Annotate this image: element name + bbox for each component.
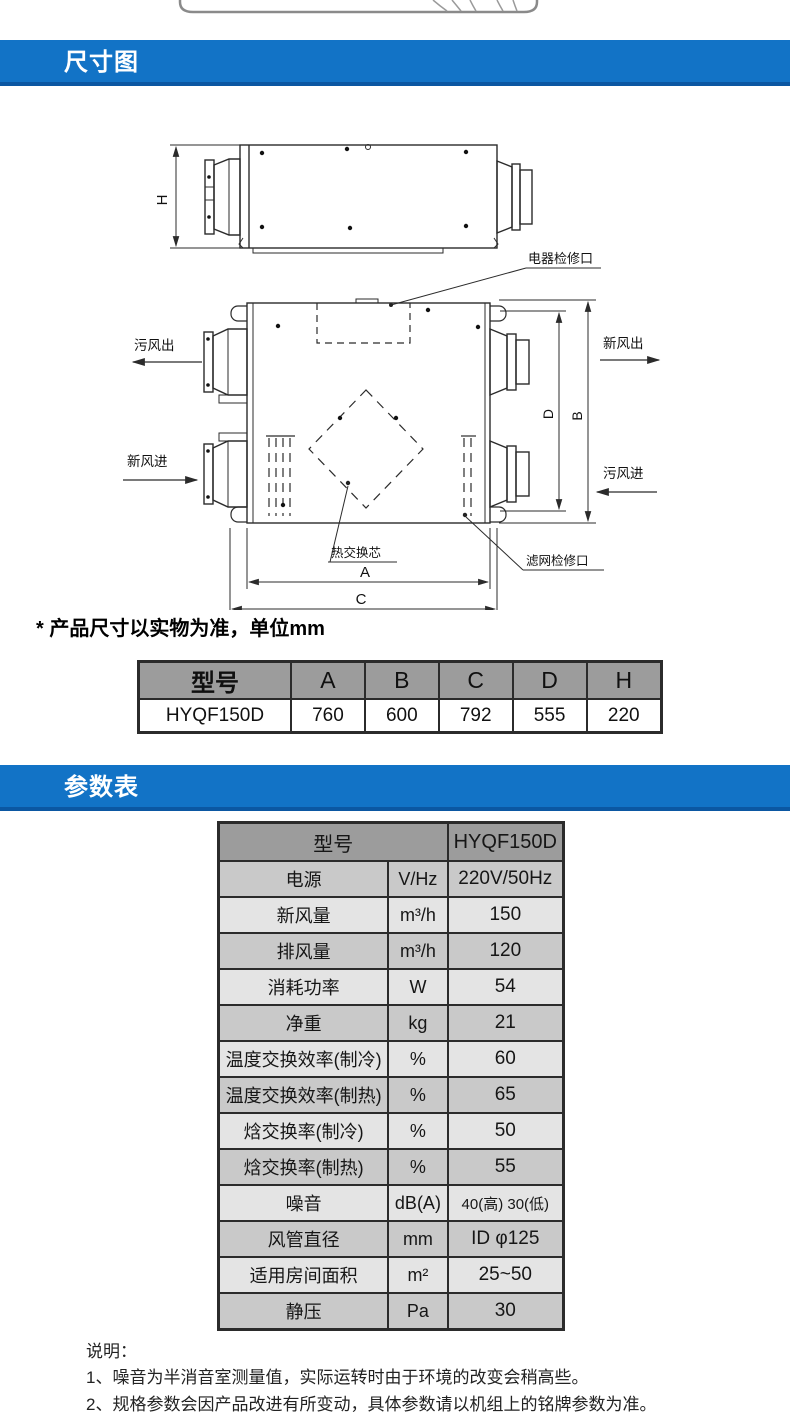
param-unit: m² <box>388 1257 447 1293</box>
callout-heat-core-label: 热交换芯 <box>331 545 381 560</box>
notes-title: 说明： <box>86 1339 790 1365</box>
param-label: 噪音 <box>219 1185 389 1221</box>
param-value: 60 <box>448 1041 564 1077</box>
electric-access-panel <box>317 303 410 343</box>
param-label: 焓交换率(制热) <box>219 1149 389 1185</box>
param-unit: dB(A) <box>388 1185 447 1221</box>
dim-th-b: B <box>365 662 439 700</box>
dim-th-model: 型号 <box>139 662 292 700</box>
param-unit: m³/h <box>388 933 447 969</box>
param-row: 温度交换效率(制冷) % 60 <box>219 1041 564 1077</box>
param-row: 风管直径 mm ID φ125 <box>219 1221 564 1257</box>
param-label: 排风量 <box>219 933 389 969</box>
param-unit: mm <box>388 1221 447 1257</box>
param-unit: V/Hz <box>388 861 447 897</box>
right-ducts <box>490 329 529 507</box>
dim-th-c: C <box>439 662 513 700</box>
dim-label-b: B <box>569 411 585 420</box>
param-unit: % <box>388 1077 447 1113</box>
dim-td-b: 600 <box>365 699 439 733</box>
callout-electric-access <box>389 268 601 307</box>
dim-label-c: C <box>356 591 367 608</box>
param-label: 温度交换效率(制冷) <box>219 1041 389 1077</box>
screw-dots <box>207 147 468 230</box>
product-spec-page: 尺寸图 <box>0 0 790 1418</box>
param-unit: m³/h <box>388 897 447 933</box>
param-label: 新风量 <box>219 897 389 933</box>
dim-td-h: 220 <box>587 699 662 733</box>
param-unit: kg <box>388 1005 447 1041</box>
flow-label-dirty-out: 污风出 <box>134 338 175 353</box>
param-unit: % <box>388 1041 447 1077</box>
param-value: 21 <box>448 1005 564 1041</box>
dimension-note: * 产品尺寸以实物为准，单位mm <box>0 612 790 646</box>
dimension-drawing: H 电器检修口 <box>0 86 790 610</box>
param-value: 220V/50Hz <box>448 861 564 897</box>
heat-core-diamond <box>309 390 423 508</box>
footer-notes: 说明： 1、噪音为半消音室测量值，实际运转时由于环境的改变会稍高些。 2、规格参… <box>0 1339 790 1418</box>
filter-left <box>266 436 295 516</box>
dim-D <box>500 311 566 511</box>
param-row: 新风量 m³/h 150 <box>219 897 564 933</box>
param-label: 消耗功率 <box>219 969 389 1005</box>
callout-electric-access-label: 电器检修口 <box>528 251 593 266</box>
param-value: 65 <box>448 1077 564 1113</box>
param-label: 风管直径 <box>219 1221 389 1257</box>
param-value: 30 <box>448 1293 564 1330</box>
param-value: 25~50 <box>448 1257 564 1293</box>
photo-vent-lines <box>433 0 517 11</box>
section-header-parameters: 参数表 <box>0 765 790 811</box>
param-row: 净重 kg 21 <box>219 1005 564 1041</box>
param-row: 消耗功率 W 54 <box>219 969 564 1005</box>
callout-filter-access-label: 滤网检修口 <box>526 553 589 568</box>
dim-td-a: 760 <box>291 699 365 733</box>
param-unit: % <box>388 1149 447 1185</box>
dim-label-h: H <box>154 195 171 206</box>
param-value: 150 <box>448 897 564 933</box>
param-row: 排风量 m³/h 120 <box>219 933 564 969</box>
param-value: 54 <box>448 969 564 1005</box>
param-unit: W <box>388 969 447 1005</box>
param-row: 噪音 dB(A) 40(高) 30(低) <box>219 1185 564 1221</box>
param-value: 55 <box>448 1149 564 1185</box>
param-label: 净重 <box>219 1005 389 1041</box>
dim-th-a: A <box>291 662 365 700</box>
side-view-drawing: H <box>154 145 532 254</box>
param-label: 静压 <box>219 1293 389 1330</box>
param-row: 适用房间面积 m² 25~50 <box>219 1257 564 1293</box>
parameter-table: 型号 HYQF150D 电源 V/Hz 220V/50Hz 新风量 m³/h 1… <box>217 821 565 1331</box>
param-row: 温度交换效率(制热) % 65 <box>219 1077 564 1113</box>
flow-label-fresh-in: 新风进 <box>127 454 168 469</box>
dim-td-model: HYQF150D <box>139 699 292 733</box>
note-line: 1、噪音为半消音室测量值，实际运转时由于环境的改变会稍高些。 <box>86 1365 790 1391</box>
param-value: 50 <box>448 1113 564 1149</box>
flow-label-fresh-out: 新风出 <box>603 336 644 351</box>
param-value: 120 <box>448 933 564 969</box>
param-row: 焓交换率(制热) % 55 <box>219 1149 564 1185</box>
param-row: 焓交换率(制冷) % 50 <box>219 1113 564 1149</box>
note-line: 2、规格参数会因产品改进有所变动，具体参数请以机组上的铭牌参数为准。 <box>86 1392 790 1418</box>
param-label: 电源 <box>219 861 389 897</box>
dim-th-h: H <box>587 662 662 700</box>
dimension-table: 型号 A B C D H HYQF150D 760 600 792 555 22… <box>137 660 663 734</box>
dim-th-d: D <box>513 662 587 700</box>
param-model-label: 型号 <box>219 823 448 862</box>
dim-td-d: 555 <box>513 699 587 733</box>
param-value: 40(高) 30(低) <box>448 1185 564 1221</box>
dim-td-c: 792 <box>439 699 513 733</box>
param-unit: Pa <box>388 1293 447 1330</box>
param-label: 焓交换率(制冷) <box>219 1113 389 1149</box>
dim-label-a: A <box>360 564 370 581</box>
param-label: 适用房间面积 <box>219 1257 389 1293</box>
mounting-brackets <box>231 306 506 522</box>
param-unit: % <box>388 1113 447 1149</box>
param-row: 静压 Pa 30 <box>219 1293 564 1330</box>
product-photo-fragment <box>0 0 790 40</box>
param-model-value: HYQF150D <box>448 823 564 862</box>
filter-right <box>461 436 476 516</box>
param-value: ID φ125 <box>448 1221 564 1257</box>
dimension-table-data-row: HYQF150D 760 600 792 555 220 <box>139 699 662 733</box>
param-label: 温度交换效率(制热) <box>219 1077 389 1113</box>
param-row: 电源 V/Hz 220V/50Hz <box>219 861 564 897</box>
flow-label-dirty-in: 污风进 <box>603 466 644 481</box>
dim-label-d: D <box>540 409 556 419</box>
left-ducts <box>204 329 247 507</box>
section-header-dimensions: 尺寸图 <box>0 40 790 86</box>
dimension-table-header-row: 型号 A B C D H <box>139 662 662 700</box>
param-row-model: 型号 HYQF150D <box>219 823 564 862</box>
